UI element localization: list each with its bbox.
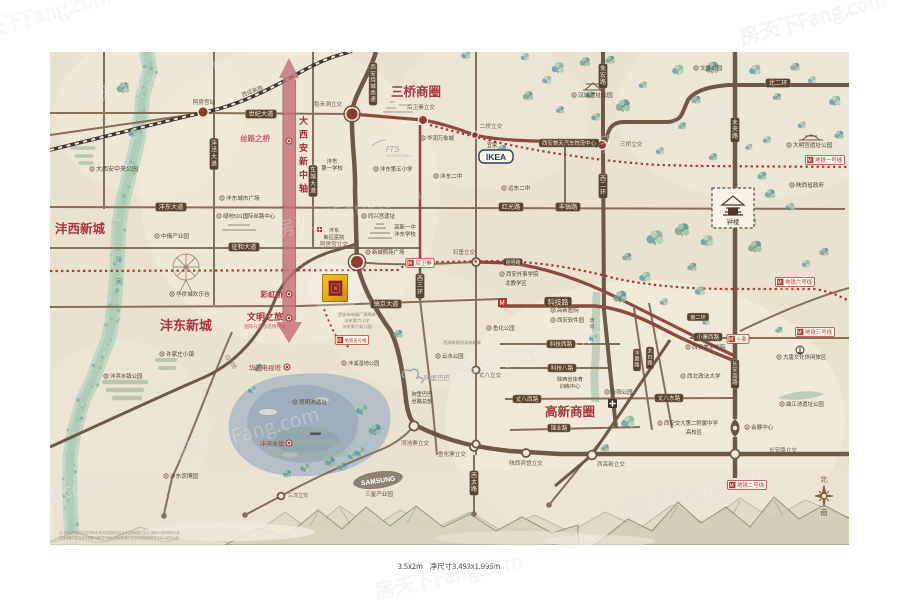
svg-text:彩虹桥: 彩虹桥 [260,289,284,300]
svg-text:丝路之桥: 丝路之桥 [240,133,270,144]
svg-text:三桥商圈: 三桥商圈 [391,81,441,100]
svg-text:沣东第六小学: 沣东第六小学 [344,317,369,324]
svg-text:文景公园: 文景公园 [700,64,723,72]
svg-text:沣东新城: 沣东新城 [160,315,212,334]
svg-text:中俄产业园: 中俄产业园 [161,232,189,240]
svg-text:阿里巴巴: 阿里巴巴 [424,372,451,382]
svg-text:鱼化公园: 鱼化公园 [493,324,515,332]
svg-text:石堡立交: 石堡立交 [453,248,476,256]
svg-text:后卫寨立交: 后卫寨立交 [407,103,435,111]
svg-text:西安美术学院: 西安美术学院 [692,343,726,351]
svg-text:沣东第六幼儿园: 沣东第六幼儿园 [342,323,371,330]
svg-text:SHOPPING MALL: SHOPPING MALL [386,153,412,158]
svg-text:西安交大第二附属中学: 西安交大第二附属中学 [664,419,719,427]
svg-text:沣: 沣 [116,255,123,265]
svg-text:M: M [777,278,781,286]
svg-text:绿地501国际丝路中心: 绿地501国际丝路中心 [223,212,276,220]
svg-text:路: 路 [471,484,477,493]
svg-text:西高新立交: 西高新立交 [597,460,625,468]
svg-text:陕西省体育: 陕西省体育 [557,375,583,383]
svg-text:道: 道 [310,185,316,194]
svg-text:昆明池遗址: 昆明池遗址 [299,398,327,406]
svg-text:陕西省政府: 陕西省政府 [796,181,824,189]
svg-text:第一学校: 第一学校 [321,164,343,172]
svg-text:中: 中 [299,168,308,181]
svg-text:路: 路 [732,131,738,140]
svg-text:科技八路: 科技八路 [551,364,574,372]
svg-text:南二环: 南二环 [690,313,706,321]
svg-text:曲江池遗址公园: 曲江池遗址公园 [786,400,824,408]
svg-text:沣东农博园: 沣东农博园 [170,472,198,480]
svg-text:沣溪湿地公园: 沣溪湿地公园 [348,359,379,367]
svg-text:丝路总部: 丝路总部 [412,397,433,405]
svg-text:M: M [500,297,505,307]
svg-text:地铁一号线: 地铁一号线 [815,156,843,164]
svg-text:西北政法大学: 西北政法大学 [687,372,721,380]
svg-text:M: M [408,259,412,267]
svg-text:南: 南 [820,507,828,518]
svg-text:河池寨立交: 河池寨立交 [401,439,429,447]
svg-text:新城熙苑广场: 新城熙苑广场 [372,248,405,256]
svg-text:钟楼: 钟楼 [727,217,740,226]
svg-text:道: 道 [211,158,217,167]
svg-text:阿房宫站: 阿房宫站 [193,98,216,106]
svg-text:文明之旅: 文明之旅 [246,310,283,323]
svg-text:大唐文化休闲旅区: 大唐文化休闲旅区 [783,353,827,361]
svg-text:世纪大道: 世纪大道 [249,109,274,118]
svg-text:M: M [797,328,801,336]
svg-text:丈八立交: 丈八立交 [479,371,502,379]
svg-text:安: 安 [299,141,308,154]
svg-text:云水公园: 云水公园 [442,352,464,360]
svg-text:路: 路 [600,77,606,86]
svg-text:远东二中: 远东二中 [508,184,531,192]
svg-text:汉城遗址公园: 汉城遗址公园 [578,90,613,99]
svg-text:沣东: 沣东 [329,226,339,234]
svg-text:昆明路: 昆明路 [505,259,520,266]
svg-text:路: 路 [732,378,738,386]
svg-text:沣滨水镇: 沣滨水镇 [260,439,284,448]
svg-text:国际礼区示范博物馆: 国际礼区示范博物馆 [244,323,286,330]
svg-text:西咸车管所沣东新城: 西咸车管所沣东新城 [443,339,482,346]
svg-text:宜家: 宜家 [487,141,498,149]
svg-text:路: 路 [634,361,640,369]
svg-text:阿里巴巴: 阿里巴巴 [412,390,433,398]
svg-text:沣东大道: 沣东大道 [159,202,184,211]
svg-text:环: 环 [417,287,423,296]
svg-text:丰镐路: 丰镐路 [559,202,578,211]
svg-text:长安路立交: 长安路立交 [769,446,797,454]
svg-text:锦业路: 锦业路 [551,424,568,432]
svg-text:地铁五号线: 地铁五号线 [345,337,367,344]
svg-text:M: M [337,336,341,344]
svg-text:地铁六号线: 地铁六号线 [785,278,813,286]
svg-text:北二环: 北二环 [769,78,788,87]
svg-text:新区医院: 新区医院 [324,233,346,241]
svg-text:北: 北 [820,474,828,485]
svg-text:华表电视塔: 华表电视塔 [249,362,282,372]
svg-text:同兴宫遗址: 同兴宫遗址 [368,212,396,220]
svg-text:沣西新城: 沣西新城 [55,218,106,237]
svg-text:M: M [729,335,733,343]
svg-text:三汊立交: 三汊立交 [288,492,308,499]
svg-text:丈八东路: 丈八东路 [658,394,681,402]
svg-text:会展中心: 会展中心 [751,423,774,431]
svg-text:高新商圈: 高新商圈 [545,401,595,420]
svg-text:河: 河 [116,277,123,287]
svg-text:高新医院: 高新医院 [557,306,579,314]
svg-text:沣东城市广场: 沣东城市广场 [226,194,260,202]
svg-text:训练中心: 训练中心 [560,382,581,390]
svg-text:沣东学校: 沣东学校 [394,230,416,238]
svg-text:镐京大道: 镐京大道 [374,299,399,308]
svg-text:大: 大 [299,114,308,127]
svg-text:后卫寨: 后卫寨 [415,259,432,267]
svg-text:西安首天汽车悦茂中心: 西安首天汽车悦茂中心 [542,139,597,147]
svg-text:沣东第五小学: 沣东第五小学 [380,165,413,173]
svg-text:西安软件园: 西安软件园 [557,316,584,324]
svg-text:M: M [807,156,811,164]
svg-text:鱼化寨立交: 鱼化寨立交 [438,450,466,458]
svg-text:小寨: 小寨 [736,336,746,343]
svg-text:永阳公园: 永阳公园 [611,388,633,396]
svg-text:三桥立交: 三桥立交 [620,140,643,148]
svg-text:红光路: 红光路 [502,202,521,211]
svg-text:征和大道: 征和大道 [232,242,257,251]
svg-text:地铁二号线: 地铁二号线 [737,481,765,489]
svg-text:大明宫遗址公园: 大明宫遗址公园 [793,141,833,149]
svg-text:稻禾洞立交: 稻禾洞立交 [314,100,342,108]
svg-text:丈八西路: 丈八西路 [516,395,539,403]
svg-text:科技西路: 科技西路 [550,340,573,348]
svg-text:西安外事学院: 西安外事学院 [506,270,539,278]
svg-text:城: 城 [590,323,595,330]
svg-text:新: 新 [299,155,308,168]
svg-text:阿房宫立交: 阿房宫立交 [320,240,348,248]
svg-text:M: M [729,481,733,489]
svg-text:轴: 轴 [299,182,308,195]
svg-text:小寨西路: 小寨西路 [697,333,720,341]
svg-text:大西安中央公园: 大西安中央公园 [96,164,138,173]
svg-text:西: 西 [299,128,308,141]
svg-text:许家庄小镇: 许家庄小镇 [166,350,194,358]
svg-text:北教学区: 北教学区 [505,279,527,287]
svg-text:西安市车辆厂保障房: 西安市车辆厂保障房 [338,311,376,318]
svg-text:地铁三号线: 地铁三号线 [805,328,833,336]
svg-text:二桥立交: 二桥立交 [480,122,503,130]
svg-text:华侨城欢乐谷: 华侨城欢乐谷 [176,290,210,298]
svg-text:IKEA: IKEA [486,151,506,163]
svg-text:高校区: 高校区 [686,428,703,436]
svg-text:沣滨水镇公园: 沣滨水镇公园 [110,372,142,380]
svg-text:速: 速 [370,95,376,103]
svg-text:陕西宾馆立交: 陕西宾馆立交 [509,459,543,467]
svg-text:华润万象城: 华润万象城 [427,134,455,142]
svg-text:路: 路 [647,359,653,367]
svg-text:三星产业园: 三星产业园 [365,490,393,498]
svg-text:沣东二中: 沣东二中 [440,172,463,180]
svg-text:本项目推广名为宣传需要,地图非精确比例绘制,部分信息可能因时: 本项目推广名为宣传需要,地图非精确比例绘制,部分信息可能因时间变化请以实际为准。 [59,535,182,540]
svg-text:环: 环 [600,187,606,196]
